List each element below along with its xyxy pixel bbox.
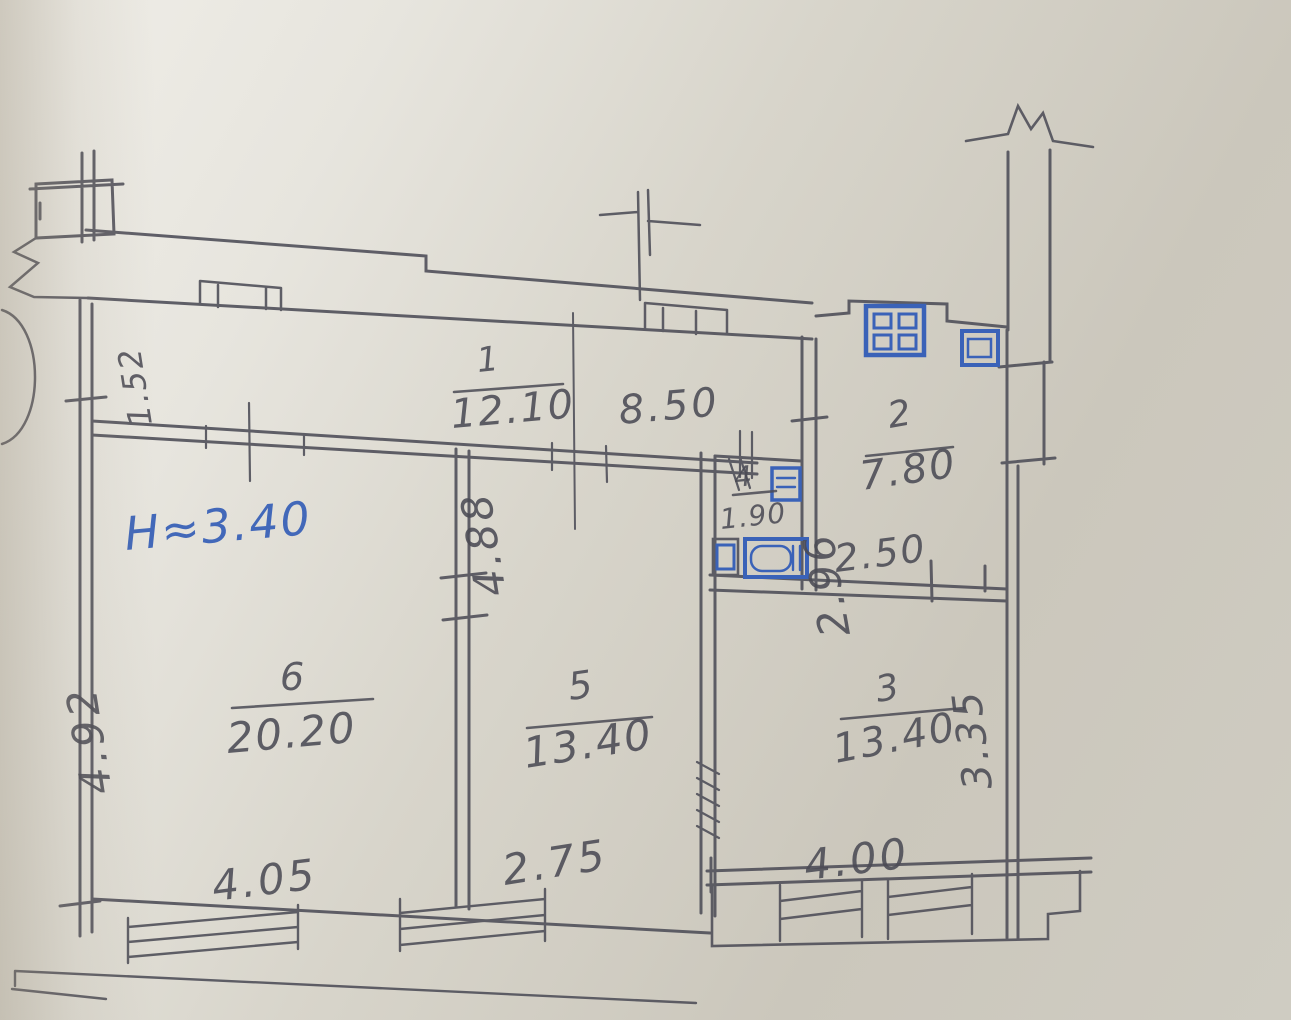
sink-basin — [968, 339, 991, 357]
bathtub-basin — [751, 546, 791, 571]
room-bath-area: 1.90 — [718, 496, 787, 536]
room-kitchen-area: 7.80 — [857, 441, 960, 500]
room-kitchen-number: 2 — [884, 393, 914, 437]
balcony-window-left — [780, 880, 862, 941]
stove-burner — [899, 335, 916, 349]
top-inner-wall — [88, 298, 812, 339]
room6-area: 20.20 — [225, 703, 359, 763]
left-break-mark — [10, 238, 88, 298]
room3-area: 13.40 — [829, 704, 960, 773]
window-room6 — [128, 905, 298, 963]
stove-burner — [899, 314, 916, 328]
toilet-tank — [717, 545, 734, 569]
top-break-mark — [600, 190, 700, 300]
floor-plan-scan: 1 12.10 8.50 2 7.80 2.50 2.96 4 1.90 6 2… — [0, 0, 1291, 1020]
stair-arc — [2, 310, 35, 444]
dim-room6-width: 4.05 — [209, 849, 320, 910]
room-hall-number: 1 — [475, 339, 501, 381]
room6-number: 6 — [280, 655, 304, 699]
labels: 1 12.10 8.50 2 7.80 2.50 2.96 4 1.90 6 2… — [56, 339, 1002, 911]
stove-burner — [874, 335, 891, 349]
room5-number: 5 — [565, 662, 595, 709]
balcony-window-right — [888, 874, 972, 939]
left-wall — [60, 300, 106, 936]
bottom-outer-wall — [12, 971, 696, 1003]
dim-room3-depth: 3.35 — [944, 686, 1002, 792]
right-break-mark — [966, 106, 1093, 147]
dim-room6-depth: 4.92 — [56, 682, 122, 798]
stove-burner — [874, 314, 891, 328]
dim-room5-width: 2.75 — [499, 830, 611, 895]
washbasin-detail — [777, 478, 795, 487]
dim-room3-width: 4.00 — [801, 828, 912, 889]
wall-room5-room3 — [701, 453, 715, 916]
dim-room5-wall: 4.88 — [451, 488, 516, 600]
floor-plan-drawing: 1 12.10 8.50 2 7.80 2.50 2.96 4 1.90 6 2… — [0, 0, 1291, 1020]
room-hall-area: 12.10 — [449, 381, 577, 438]
dim-hall-width: 8.50 — [617, 379, 722, 434]
top-outer-wall — [86, 230, 812, 303]
dim-entry-width: 1.52 — [110, 344, 160, 428]
right-wall — [999, 150, 1055, 938]
room3-number: 3 — [872, 667, 902, 711]
room5-area: 13.40 — [520, 709, 656, 778]
height-note: H≈3.40 — [122, 491, 314, 561]
washbasin-icon — [772, 468, 800, 500]
porch — [30, 151, 123, 242]
room-bath-number: 4 — [732, 459, 753, 494]
